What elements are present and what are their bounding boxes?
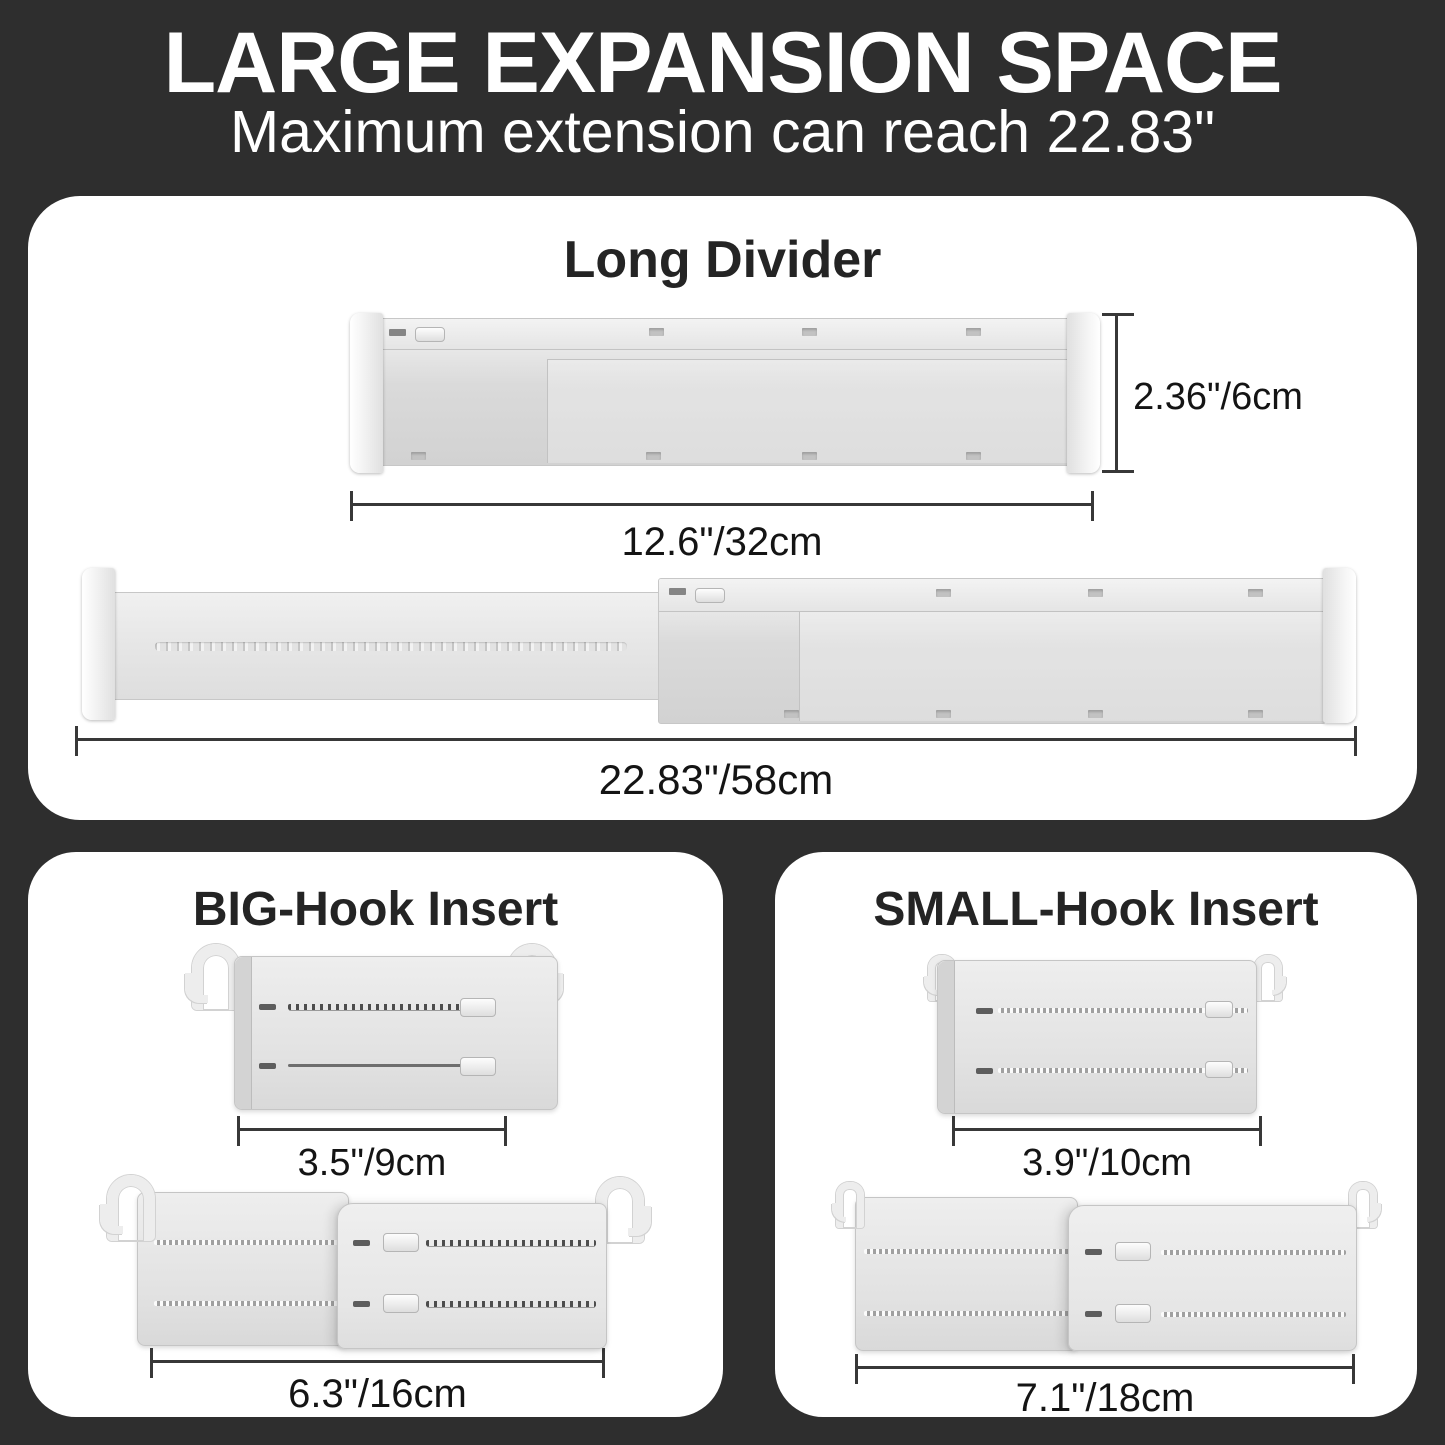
small-hook-extended-image	[838, 1177, 1375, 1349]
rail-slider	[383, 1233, 419, 1252]
slot	[802, 328, 817, 336]
slot	[1248, 589, 1263, 597]
big-hook-compact-image	[192, 942, 556, 1108]
divider-body	[378, 318, 1072, 466]
adjust-rail	[154, 1240, 344, 1245]
long-divider-title: Long Divider	[28, 230, 1417, 290]
rail-slider	[383, 1294, 419, 1313]
small-hook-icon	[1254, 955, 1282, 1005]
small-hook-title: SMALL-Hook Insert	[775, 882, 1417, 937]
small-hook-compact-image	[930, 945, 1280, 1112]
big-hook-extended-image	[107, 1175, 644, 1347]
slot	[966, 452, 981, 460]
slot	[411, 452, 426, 460]
small-hook-panel: SMALL-Hook Insert 3.9"/10cm	[775, 852, 1417, 1417]
big-hook-icon	[192, 944, 240, 1014]
extended-width-dimension-line	[150, 1360, 605, 1363]
rail-stop	[976, 1008, 993, 1014]
extended-width-label: 22.83"/58cm	[75, 756, 1357, 804]
end-cap-right	[1067, 313, 1100, 473]
sliding-panel-edge	[799, 611, 1323, 721]
slot	[784, 710, 799, 718]
compact-width-dimension-line	[237, 1128, 507, 1131]
height-dimension-label: 2.36"/6cm	[1123, 376, 1313, 419]
rail-stop	[353, 1301, 370, 1307]
end-cap-left	[82, 568, 115, 720]
rail-slider	[460, 998, 496, 1017]
lock-clip	[415, 327, 445, 342]
extended-width-label: 6.3"/16cm	[150, 1372, 605, 1417]
rail-slider	[1115, 1242, 1151, 1261]
rail-slider	[1205, 1001, 1233, 1018]
front-tray	[1068, 1205, 1357, 1351]
slot	[1248, 710, 1263, 718]
lock-clip	[695, 588, 725, 603]
slot	[936, 589, 951, 597]
rear-tray	[855, 1197, 1078, 1351]
rear-tray	[137, 1192, 349, 1346]
ratchet-strip	[155, 642, 627, 651]
small-hook-icon	[836, 1182, 864, 1232]
long-divider-collapsed-image	[350, 313, 1100, 473]
insert-body	[234, 956, 558, 1110]
extended-width-dimension-line	[75, 738, 1357, 741]
adjust-rail	[864, 1311, 1073, 1316]
slot	[936, 710, 951, 718]
rail-stop	[976, 1068, 993, 1074]
long-divider-panel: Long Divider 2.36"/6cm 12.6"/32cm	[28, 196, 1417, 820]
end-cap-right	[1323, 568, 1356, 723]
rail-stop	[259, 1004, 276, 1010]
divider-top-lip	[659, 579, 1325, 612]
rail-stop	[1085, 1311, 1102, 1317]
rail-stop	[1085, 1249, 1102, 1255]
height-dimension-line	[1115, 313, 1118, 473]
long-divider-extended-image	[82, 568, 1356, 723]
rail-slider	[1205, 1061, 1233, 1078]
adjust-rail	[1161, 1250, 1346, 1255]
rail-slider	[460, 1057, 496, 1076]
subheadline: Maximum extension can reach 22.83"	[0, 98, 1445, 166]
back-panel-edge	[235, 957, 252, 1109]
slot	[1088, 710, 1103, 718]
slot	[802, 452, 817, 460]
slot	[646, 452, 661, 460]
extended-width-dimension-line	[855, 1366, 1355, 1369]
product-infographic: LARGE EXPANSION SPACE Maximum extension …	[0, 0, 1445, 1445]
big-hook-panel: BIG-Hook Insert 3.5"/9cm	[28, 852, 723, 1417]
compact-width-dimension-line	[952, 1128, 1262, 1131]
lock-mark	[669, 588, 686, 595]
adjust-rail	[426, 1240, 596, 1246]
adjust-rail	[1161, 1312, 1346, 1317]
end-cap-left	[350, 313, 383, 473]
inner-sliding-bar	[112, 592, 664, 700]
collapsed-width-label: 12.6"/32cm	[350, 520, 1094, 565]
adjust-rail	[426, 1301, 596, 1307]
big-hook-title: BIG-Hook Insert	[28, 882, 723, 937]
rail-slider	[1115, 1304, 1151, 1323]
front-tray	[337, 1203, 607, 1349]
sliding-panel-edge	[547, 359, 1069, 463]
outer-shell	[658, 578, 1326, 724]
lock-mark	[389, 329, 406, 336]
adjust-rail	[154, 1301, 344, 1306]
adjust-rail	[864, 1249, 1073, 1254]
rail-stop	[353, 1240, 370, 1246]
extended-width-label: 7.1"/18cm	[855, 1376, 1355, 1421]
slot	[1088, 589, 1103, 597]
slot	[966, 328, 981, 336]
rail-stop	[259, 1063, 276, 1069]
big-hook-icon	[107, 1175, 155, 1245]
insert-body	[937, 960, 1257, 1114]
collapsed-width-dimension-line	[350, 503, 1094, 506]
back-panel-edge	[938, 961, 955, 1113]
slot	[649, 328, 664, 336]
